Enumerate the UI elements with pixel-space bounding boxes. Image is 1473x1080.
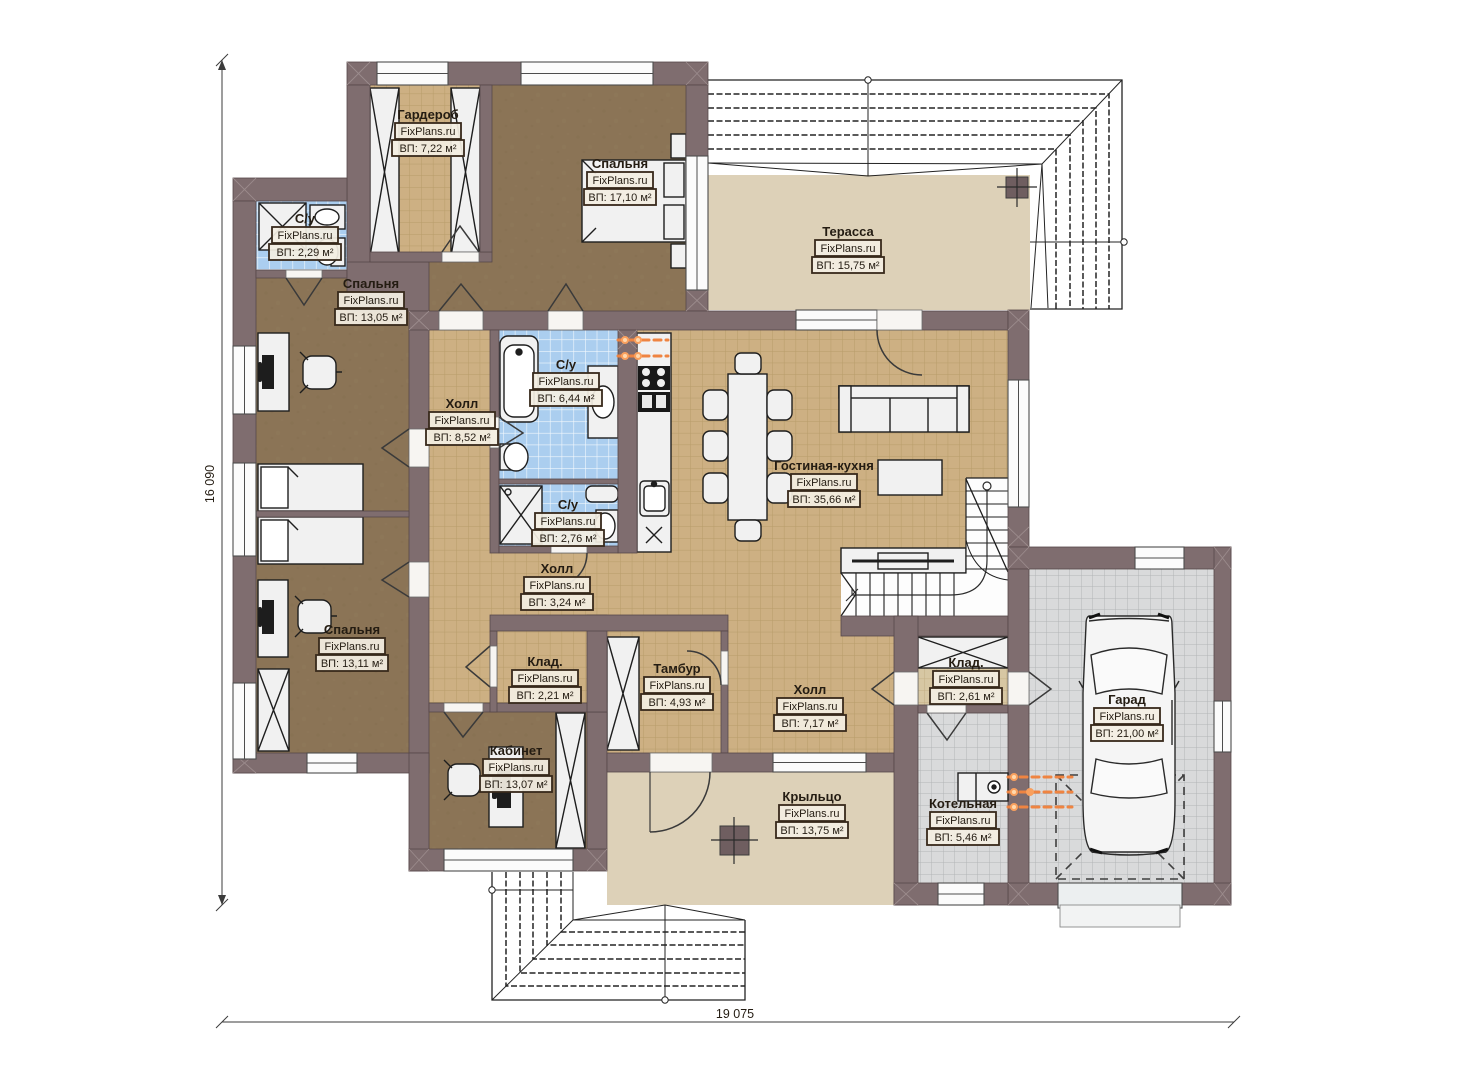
svg-text:ВП: 35,66 м²: ВП: 35,66 м² bbox=[792, 494, 856, 506]
svg-text:FixPlans.ru: FixPlans.ru bbox=[529, 580, 584, 592]
svg-text:FixPlans.ru: FixPlans.ru bbox=[324, 641, 379, 653]
svg-text:16 090: 16 090 bbox=[203, 465, 217, 503]
svg-text:С/у: С/у bbox=[295, 211, 316, 226]
svg-text:FixPlans.ru: FixPlans.ru bbox=[517, 673, 572, 685]
svg-text:ВП: 4,93 м²: ВП: 4,93 м² bbox=[648, 697, 705, 709]
svg-text:ВП: 2,76 м²: ВП: 2,76 м² bbox=[539, 533, 596, 545]
svg-text:Клад.: Клад. bbox=[527, 654, 562, 669]
svg-text:FixPlans.ru: FixPlans.ru bbox=[938, 674, 993, 686]
svg-text:Спальня: Спальня bbox=[324, 622, 380, 637]
svg-text:ВП: 13,07 м²: ВП: 13,07 м² bbox=[484, 779, 548, 791]
svg-text:FixPlans.ru: FixPlans.ru bbox=[540, 516, 595, 528]
svg-text:Котельная: Котельная bbox=[929, 796, 997, 811]
svg-text:Гардероб: Гардероб bbox=[397, 107, 458, 122]
svg-text:ВП: 13,11 м²: ВП: 13,11 м² bbox=[321, 658, 384, 670]
svg-text:Клад.: Клад. bbox=[948, 655, 983, 670]
svg-text:Холл: Холл bbox=[446, 396, 479, 411]
svg-text:FixPlans.ru: FixPlans.ru bbox=[538, 376, 593, 388]
svg-text:FixPlans.ru: FixPlans.ru bbox=[343, 295, 398, 307]
svg-text:FixPlans.ru: FixPlans.ru bbox=[1099, 711, 1154, 723]
svg-text:Кабинет: Кабинет bbox=[490, 743, 543, 758]
svg-text:ВП: 3,24 м²: ВП: 3,24 м² bbox=[528, 597, 585, 609]
svg-text:FixPlans.ru: FixPlans.ru bbox=[796, 477, 851, 489]
svg-text:Холл: Холл bbox=[541, 561, 574, 576]
svg-text:Терасса: Терасса bbox=[822, 224, 874, 239]
svg-text:ВП: 7,17 м²: ВП: 7,17 м² bbox=[781, 718, 838, 730]
svg-text:FixPlans.ru: FixPlans.ru bbox=[488, 762, 543, 774]
svg-text:FixPlans.ru: FixPlans.ru bbox=[784, 808, 839, 820]
svg-text:ВП: 13,05 м²: ВП: 13,05 м² bbox=[339, 312, 403, 324]
svg-text:Крыльцо: Крыльцо bbox=[782, 789, 841, 804]
svg-text:Спальня: Спальня bbox=[343, 276, 399, 291]
svg-text:FixPlans.ru: FixPlans.ru bbox=[820, 243, 875, 255]
svg-text:Холл: Холл bbox=[794, 682, 827, 697]
svg-text:FixPlans.ru: FixPlans.ru bbox=[277, 230, 332, 242]
svg-text:ВП: 21,00 м²: ВП: 21,00 м² bbox=[1095, 728, 1159, 740]
svg-text:ВП: 6,44 м²: ВП: 6,44 м² bbox=[537, 393, 594, 405]
svg-text:ВП: 15,75 м²: ВП: 15,75 м² bbox=[816, 260, 880, 272]
svg-text:FixPlans.ru: FixPlans.ru bbox=[434, 415, 489, 427]
svg-text:Гостиная-кухня: Гостиная-кухня bbox=[774, 458, 874, 473]
svg-text:FixPlans.ru: FixPlans.ru bbox=[592, 175, 647, 187]
svg-text:Тамбур: Тамбур bbox=[653, 661, 700, 676]
svg-text:Гарад: Гарад bbox=[1108, 692, 1147, 707]
svg-text:ВП: 2,29 м²: ВП: 2,29 м² bbox=[276, 247, 333, 259]
svg-text:ВП: 17,10 м²: ВП: 17,10 м² bbox=[588, 192, 652, 204]
svg-text:FixPlans.ru: FixPlans.ru bbox=[782, 701, 837, 713]
svg-text:ВП: 7,22 м²: ВП: 7,22 м² bbox=[399, 143, 456, 155]
svg-text:ВП: 8,52 м²: ВП: 8,52 м² bbox=[433, 432, 490, 444]
svg-text:Спальня: Спальня bbox=[592, 156, 648, 171]
svg-text:С/у: С/у bbox=[556, 357, 577, 372]
svg-text:FixPlans.ru: FixPlans.ru bbox=[935, 815, 990, 827]
svg-text:ВП: 2,21 м²: ВП: 2,21 м² bbox=[516, 690, 573, 702]
svg-text:ВП: 5,46 м²: ВП: 5,46 м² bbox=[934, 832, 991, 844]
svg-text:FixPlans.ru: FixPlans.ru bbox=[400, 126, 455, 138]
svg-text:С/у: С/у bbox=[558, 497, 579, 512]
svg-text:ВП: 2,61 м²: ВП: 2,61 м² bbox=[937, 691, 994, 703]
svg-text:19 075: 19 075 bbox=[716, 1007, 754, 1021]
svg-text:ВП: 13,75 м²: ВП: 13,75 м² bbox=[780, 825, 844, 837]
svg-text:FixPlans.ru: FixPlans.ru bbox=[649, 680, 704, 692]
